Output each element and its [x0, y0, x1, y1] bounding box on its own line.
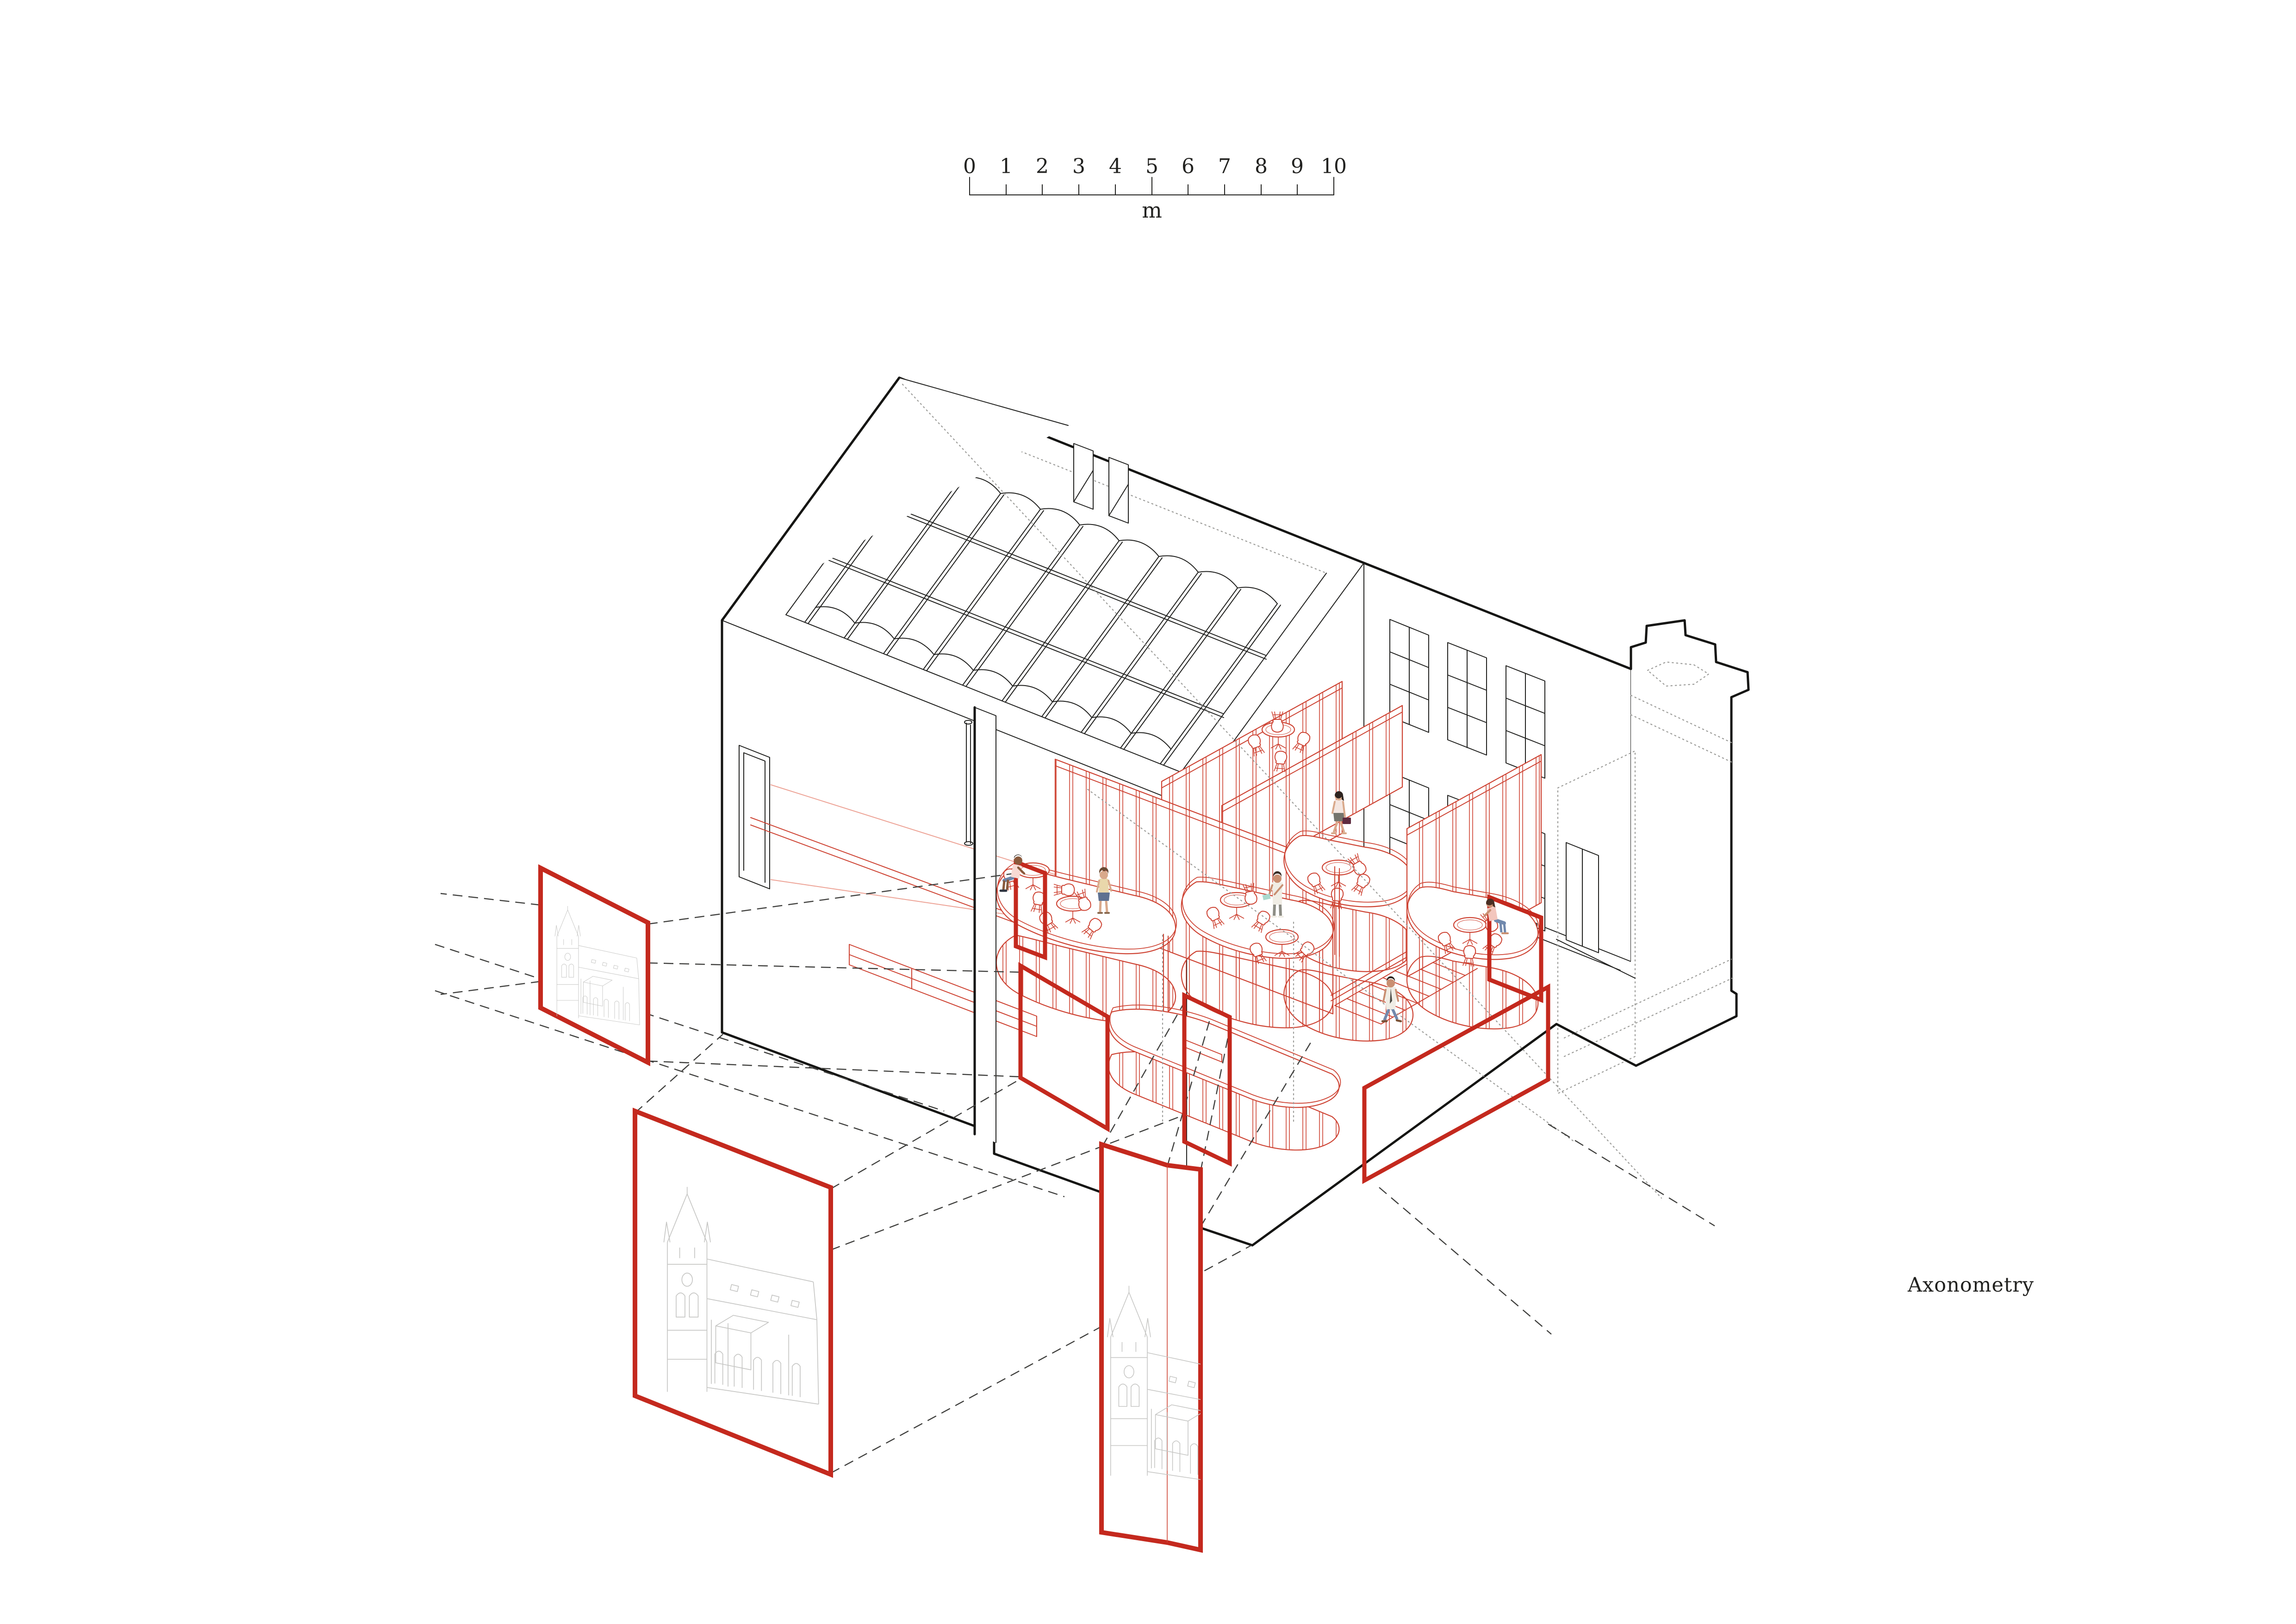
cafe-chair — [1271, 712, 1283, 732]
tick-label-9: 9 — [1291, 155, 1304, 178]
tick-label-8: 8 — [1255, 155, 1268, 178]
tick-label-7: 7 — [1218, 155, 1231, 178]
projection-panel-lower-left — [635, 1111, 831, 1474]
scale-bar-unit: m — [1142, 198, 1162, 223]
projection-panel-bottom-center — [1101, 1144, 1251, 1550]
axonometric-drawing: 0 1 2 3 4 5 6 7 8 9 10 m Axonometry — [0, 0, 2296, 1624]
projection-panel-upper-left — [541, 868, 648, 1062]
cafe-chair — [1054, 884, 1075, 896]
tick-label-2: 2 — [1036, 155, 1049, 178]
tick-label-10: 10 — [1321, 155, 1347, 178]
drawing-caption: Axonometry — [1907, 1274, 2034, 1297]
tick-label-5: 5 — [1145, 155, 1158, 178]
bar-counter — [1108, 1005, 1340, 1150]
tick-label-0: 0 — [963, 155, 976, 178]
drawing-sheet: 0 1 2 3 4 5 6 7 8 9 10 m Axonometry — [0, 0, 2296, 1624]
tick-label-4: 4 — [1109, 155, 1122, 178]
tick-label-1: 1 — [1000, 155, 1013, 178]
tick-label-3: 3 — [1072, 155, 1085, 178]
scale-bar-major-ticks — [970, 177, 1334, 195]
scale-bar: 0 1 2 3 4 5 6 7 8 9 10 m — [963, 155, 1347, 223]
section-cut-pier — [975, 707, 996, 1143]
tick-label-6: 6 — [1182, 155, 1195, 178]
